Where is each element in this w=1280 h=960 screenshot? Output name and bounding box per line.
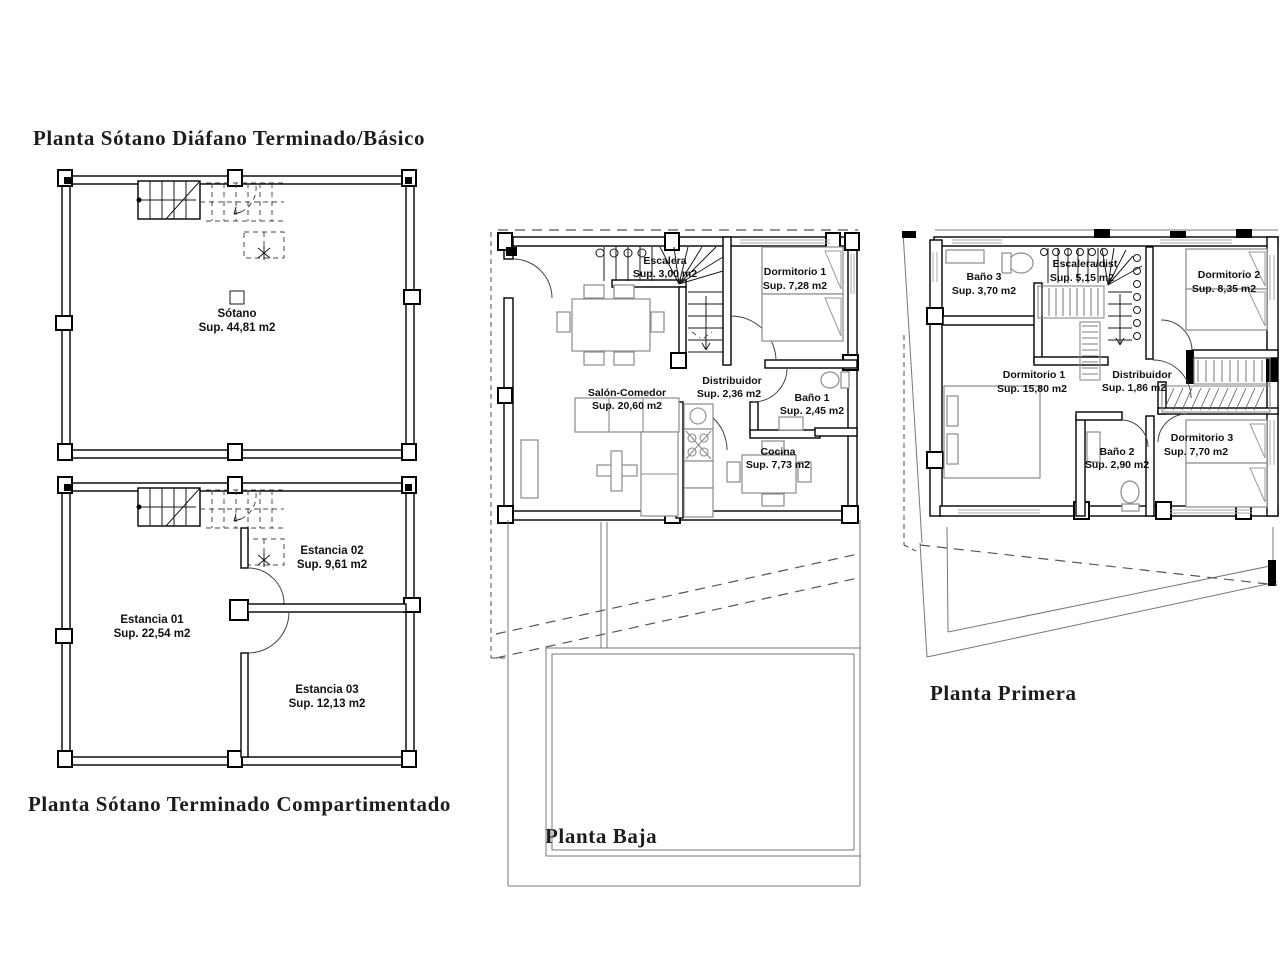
room-label-estancia01-area: Sup. 22,54 m2 xyxy=(114,628,191,640)
room-label-escalera-name: Escalera xyxy=(643,255,686,267)
room-label-escalera-area: Sup. 3,00 m2 xyxy=(633,268,697,280)
room-label-estancia03-name: Estancia 03 xyxy=(295,684,358,696)
room-label-bano2-area: Sup. 2,90 m2 xyxy=(1085,459,1149,471)
room-label-sotano-name: Sótano xyxy=(218,308,257,320)
room-label-distribuidor-baja-area: Sup. 2,36 m2 xyxy=(697,388,761,400)
room-label-dormitorio3-area: Sup. 7,70 m2 xyxy=(1164,446,1228,458)
column-marker xyxy=(230,291,244,304)
room-label-bano2-name: Baño 2 xyxy=(1099,446,1134,458)
room-label-escalera-dist-name: Escalera/dist xyxy=(1053,258,1118,270)
room-label-estancia01-name: Estancia 01 xyxy=(120,614,184,626)
room-label-dormitorio3-name: Dormitorio 3 xyxy=(1171,432,1234,444)
room-label-dormitorio2-area: Sup. 8,35 m2 xyxy=(1192,283,1256,295)
room-label-salon-comedor-name: Salón-Comedor xyxy=(588,387,666,399)
room-label-distribuidor-primera-name: Distribuidor xyxy=(1112,369,1172,381)
room-label-estancia02-name: Estancia 02 xyxy=(300,545,363,557)
plan-sotano-compartimentado-drawing: Estancia 01 Sup. 22,54 m2 Estancia 02 Su… xyxy=(56,477,420,767)
room-label-bano1-area: Sup. 2,45 m2 xyxy=(780,405,844,417)
floorplan-canvas: Sótano Sup. 44,81 m2 xyxy=(0,0,1280,960)
room-label-sotano-area: Sup. 44,81 m2 xyxy=(199,322,276,334)
plan-sotano-diafano-drawing: Sótano Sup. 44,81 m2 xyxy=(56,170,420,460)
room-label-distribuidor-baja-name: Distribuidor xyxy=(702,375,762,387)
room-label-bano1-name: Baño 1 xyxy=(794,392,829,404)
floorplan-sheet: Planta Sótano Diáfano Terminado/Básico P… xyxy=(0,0,1280,960)
room-label-dormitorio1-primera-area: Sup. 15,80 m2 xyxy=(997,383,1067,395)
plan-planta-primera-drawing: Baño 3 Sup. 3,70 m2 Escalera/dist Sup. 5… xyxy=(902,229,1278,657)
room-label-bano3-name: Baño 3 xyxy=(966,271,1001,283)
room-label-dormitorio1-baja-area: Sup. 7,28 m2 xyxy=(763,280,827,292)
room-label-estancia02-area: Sup. 9,61 m2 xyxy=(297,559,367,571)
room-label-escalera-dist-area: Sup. 5,15 m2 xyxy=(1050,272,1114,284)
room-label-distribuidor-primera-area: Sup. 1,86 m2 xyxy=(1102,382,1166,394)
plan-planta-baja-drawing: Escalera Sup. 3,00 m2 Dormitorio 1 Sup. … xyxy=(491,230,860,886)
room-label-salon-comedor-area: Sup. 20,60 m2 xyxy=(592,400,662,412)
room-label-bano3-area: Sup. 3,70 m2 xyxy=(952,285,1016,297)
room-label-estancia03-area: Sup. 12,13 m2 xyxy=(289,698,366,710)
room-label-dormitorio1-baja-name: Dormitorio 1 xyxy=(764,266,827,278)
room-label-cocina-name: Cocina xyxy=(760,446,795,458)
room-label-cocina-area: Sup. 7,73 m2 xyxy=(746,459,810,471)
room-label-dormitorio1-primera-name: Dormitorio 1 xyxy=(1003,369,1066,381)
room-label-dormitorio2-name: Dormitorio 2 xyxy=(1198,269,1261,281)
